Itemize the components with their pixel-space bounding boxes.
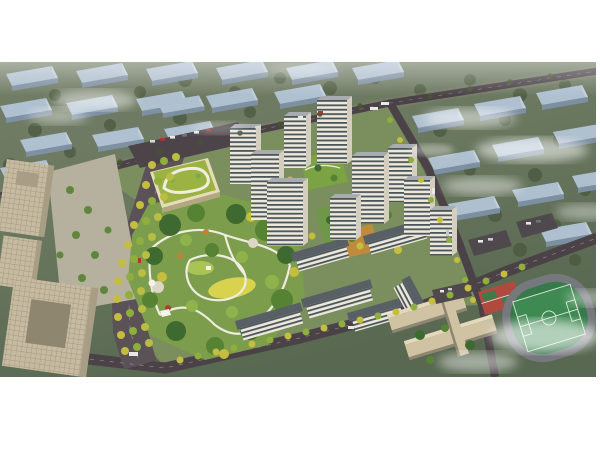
bus [381,102,389,105]
tower [267,178,308,246]
horizon-haze [0,62,596,96]
architectural-rendering [0,0,600,450]
bus [129,352,138,356]
tower [284,112,311,168]
park-plaza [248,238,258,248]
tower [330,194,361,240]
tower [430,206,457,256]
tower [317,96,352,164]
screenshot-canvas [0,0,600,450]
bus [370,107,378,110]
